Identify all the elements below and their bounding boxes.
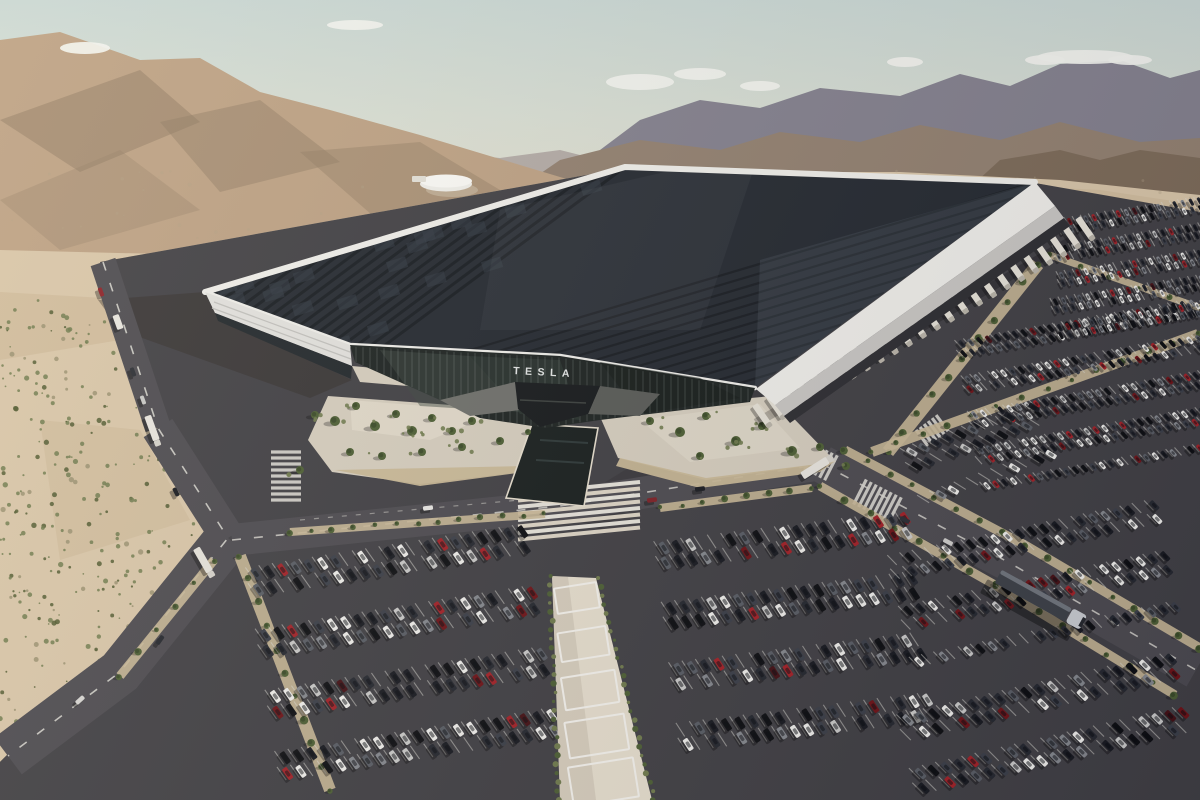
desert-shrub bbox=[42, 385, 47, 390]
desert-shrub bbox=[129, 497, 134, 502]
desert-shrub bbox=[30, 418, 33, 421]
walkway-shrub bbox=[628, 709, 632, 713]
tree-core bbox=[282, 671, 286, 675]
walkway-shrub bbox=[550, 618, 556, 624]
tree-core bbox=[810, 487, 813, 490]
tree-core bbox=[419, 449, 423, 453]
tree-core bbox=[213, 559, 216, 562]
desert-speck bbox=[160, 171, 163, 174]
cloud bbox=[606, 74, 674, 90]
desert-shrub bbox=[23, 590, 26, 593]
desert-shrub bbox=[17, 389, 20, 392]
desert-shrub bbox=[70, 422, 75, 427]
tree-core bbox=[817, 444, 821, 448]
desert-shrub bbox=[89, 395, 93, 399]
desert-shrub bbox=[97, 418, 102, 423]
desert-shrub bbox=[66, 472, 71, 477]
tree-core bbox=[766, 491, 770, 495]
desert-shrub bbox=[58, 614, 60, 616]
desert-shrub bbox=[119, 617, 121, 619]
tree-core bbox=[116, 675, 119, 678]
tree-core bbox=[1070, 378, 1072, 380]
desert-shrub bbox=[0, 507, 5, 512]
desert-shrub bbox=[98, 626, 101, 629]
walkway-shrub bbox=[551, 717, 556, 722]
desert-speck bbox=[11, 220, 13, 222]
plaza-shrub bbox=[345, 403, 349, 407]
desert-shrub bbox=[86, 644, 91, 649]
desert-shrub bbox=[20, 490, 22, 492]
desert-shrub bbox=[43, 557, 46, 560]
desert-shrub bbox=[115, 463, 117, 465]
desert-shrub bbox=[111, 560, 114, 563]
walkway-shrub bbox=[642, 762, 646, 766]
tree-core bbox=[329, 528, 333, 532]
tree-core bbox=[393, 411, 397, 415]
desert-shrub bbox=[82, 573, 84, 575]
desert-shrub bbox=[138, 549, 143, 554]
desert-shrub bbox=[7, 503, 11, 507]
desert-shrub bbox=[50, 502, 54, 506]
tree-core bbox=[310, 529, 312, 531]
desert-shrub bbox=[116, 537, 119, 540]
walkway-shrub bbox=[606, 620, 611, 625]
desert-speck bbox=[320, 212, 323, 215]
desert-shrub bbox=[81, 587, 85, 591]
desert-shrub bbox=[25, 636, 27, 638]
desert-shrub bbox=[34, 391, 38, 395]
plaza-shrub bbox=[402, 432, 404, 434]
walkway-shrub bbox=[608, 629, 612, 633]
desert-shrub bbox=[147, 530, 151, 534]
plaza-shrub bbox=[708, 415, 711, 418]
plaza-shrub bbox=[842, 463, 845, 466]
desert-shrub bbox=[192, 522, 195, 525]
desert-shrub bbox=[139, 455, 143, 459]
desert-shrub bbox=[13, 406, 18, 411]
desert-shrub bbox=[37, 299, 40, 302]
tree-core bbox=[899, 430, 903, 434]
plaza-shrub bbox=[420, 431, 423, 434]
walkway-shrub bbox=[614, 647, 619, 652]
desert-shrub bbox=[82, 497, 86, 501]
desert-shrub bbox=[2, 553, 4, 555]
tree-core bbox=[916, 539, 920, 543]
tree-core bbox=[236, 554, 239, 557]
scene-canvas: TESLA TESLA bbox=[0, 0, 1200, 800]
plaza-shrub bbox=[372, 420, 375, 423]
desert-shrub bbox=[55, 639, 58, 642]
desert-shrub bbox=[147, 550, 151, 554]
desert-shrub bbox=[64, 326, 66, 328]
desert-shrub bbox=[2, 538, 5, 541]
walkway-shrub bbox=[620, 665, 624, 669]
plaza-shrub bbox=[455, 439, 459, 443]
walkway-shrub bbox=[555, 735, 559, 739]
walkway-shrub bbox=[640, 754, 643, 757]
desert-shrub bbox=[133, 580, 136, 583]
desert-shrub bbox=[37, 617, 40, 620]
walkway-shrub bbox=[547, 591, 552, 596]
desert-shrub bbox=[85, 340, 89, 344]
desert-shrub bbox=[89, 324, 91, 326]
tree-core bbox=[817, 484, 820, 487]
desert-shrub bbox=[65, 421, 67, 423]
desert-shrub bbox=[126, 569, 130, 573]
walkway-shrub bbox=[552, 700, 555, 703]
desert-shrub bbox=[50, 603, 53, 606]
desert-shrub bbox=[44, 639, 49, 644]
desert-shrub bbox=[61, 337, 65, 341]
desert-shrub bbox=[97, 589, 100, 592]
desert-shrub bbox=[54, 463, 57, 466]
tree-core bbox=[888, 472, 891, 475]
tree-core bbox=[977, 518, 980, 521]
cloud bbox=[1108, 55, 1152, 65]
tree-core bbox=[1045, 555, 1049, 559]
desert-shrub bbox=[48, 618, 53, 623]
walkway-shrub bbox=[600, 594, 604, 598]
desert-shrub bbox=[132, 605, 134, 607]
plaza-shrub bbox=[470, 450, 474, 454]
tree-core bbox=[436, 520, 439, 523]
tree-core bbox=[841, 497, 845, 501]
desert-shrub bbox=[102, 588, 105, 591]
desert-shrub bbox=[131, 554, 134, 557]
desert-speck bbox=[138, 171, 140, 173]
tree-core bbox=[395, 522, 397, 524]
desert-shrub bbox=[5, 385, 7, 387]
tree-core bbox=[526, 430, 529, 433]
plaza-shrub bbox=[739, 441, 743, 445]
desert-shrub bbox=[3, 638, 8, 643]
desert-shrub bbox=[64, 315, 69, 320]
walkway-shrub bbox=[621, 673, 626, 678]
desert-shrub bbox=[124, 573, 128, 577]
desert-shrub bbox=[22, 474, 24, 476]
desert-shrub bbox=[117, 579, 119, 581]
tree-core bbox=[154, 628, 157, 631]
tree-core bbox=[542, 512, 544, 514]
walkway-shrub bbox=[550, 680, 556, 686]
desert-shrub bbox=[28, 326, 31, 329]
desert-shrub bbox=[110, 613, 114, 617]
walkway-shrub bbox=[648, 780, 653, 785]
desert-shrub bbox=[101, 421, 106, 426]
tree-core bbox=[301, 717, 306, 722]
plaza-shrub bbox=[661, 416, 664, 419]
desert-shrub bbox=[43, 472, 46, 475]
desert-shrub bbox=[13, 308, 17, 312]
walkway-shrub bbox=[651, 789, 655, 793]
walkway-shrub bbox=[596, 576, 600, 580]
tree-core bbox=[456, 517, 459, 520]
walkway-shrub bbox=[549, 637, 552, 640]
tree-core bbox=[647, 418, 651, 422]
desert-speck bbox=[361, 186, 364, 189]
desert-shrub bbox=[35, 382, 38, 385]
desert-shrub bbox=[55, 513, 59, 517]
desert-shrub bbox=[94, 648, 98, 652]
desert-shrub bbox=[105, 510, 108, 513]
desert-shrub bbox=[14, 709, 16, 711]
tree-core bbox=[1088, 581, 1091, 584]
tree-core bbox=[921, 432, 924, 435]
desert-shrub bbox=[9, 372, 12, 375]
desert-shrub bbox=[51, 525, 54, 528]
plaza-shrub bbox=[751, 427, 755, 431]
tree-core bbox=[966, 568, 970, 572]
plaza-shrub bbox=[734, 440, 738, 444]
desert-shrub bbox=[97, 610, 99, 612]
desert-shrub bbox=[105, 464, 109, 468]
desert-shrub bbox=[34, 657, 39, 662]
tree-core bbox=[722, 496, 726, 500]
tree-core bbox=[264, 623, 267, 626]
desert-shrub bbox=[64, 467, 69, 472]
tree-core bbox=[1171, 693, 1175, 697]
tank-pipe bbox=[412, 176, 426, 182]
walkway-shrub bbox=[613, 639, 616, 642]
desert-shrub bbox=[134, 499, 137, 502]
desert-shrub bbox=[95, 498, 99, 502]
tree-core bbox=[1083, 637, 1086, 640]
plaza-shrub bbox=[747, 446, 750, 449]
desert-shrub bbox=[103, 578, 108, 583]
desert-shrub bbox=[18, 600, 21, 603]
desert-shrub bbox=[80, 442, 84, 446]
desert-shrub bbox=[18, 575, 21, 578]
desert-speck bbox=[142, 189, 144, 191]
tree-core bbox=[703, 413, 707, 417]
tree-core bbox=[744, 493, 748, 497]
desert-shrub bbox=[153, 566, 156, 569]
plaza-shrub bbox=[715, 411, 718, 414]
tree-core bbox=[1000, 530, 1004, 534]
walkway-shrub bbox=[554, 743, 560, 749]
desert-shrub bbox=[33, 360, 37, 364]
desert-shrub bbox=[63, 662, 65, 664]
desert-shrub bbox=[191, 534, 193, 536]
plaza-shrub bbox=[411, 434, 414, 437]
desert-shrub bbox=[66, 540, 70, 544]
tree-core bbox=[894, 441, 897, 444]
tree-core bbox=[1104, 653, 1107, 656]
desert-shrub bbox=[17, 455, 20, 458]
desert-shrub bbox=[28, 592, 33, 597]
walkway-shrub bbox=[552, 726, 558, 732]
desert-shrub bbox=[107, 392, 111, 396]
desert-shrub bbox=[102, 481, 106, 485]
tree-core bbox=[417, 522, 420, 525]
desert-shrub bbox=[86, 421, 90, 425]
desert-shrub bbox=[162, 540, 166, 544]
tree-core bbox=[700, 501, 703, 504]
tree-core bbox=[787, 488, 791, 492]
desert-shrub bbox=[116, 544, 120, 548]
desert-shrub bbox=[103, 405, 106, 408]
desert-shrub bbox=[44, 440, 49, 445]
desert-shrub bbox=[63, 549, 66, 552]
walkway-shrub bbox=[604, 611, 609, 616]
walkway-shrub bbox=[643, 770, 649, 776]
plaza-shrub bbox=[448, 444, 451, 447]
desert-speck bbox=[1034, 176, 1036, 178]
tree-core bbox=[658, 505, 660, 507]
plaza-shrub bbox=[313, 419, 316, 422]
plaza-shrub bbox=[659, 426, 663, 430]
desert-speck bbox=[169, 170, 171, 172]
cloud bbox=[887, 57, 923, 67]
tree-core bbox=[944, 423, 948, 427]
desert-shrub bbox=[9, 576, 12, 579]
desert-shrub bbox=[16, 492, 20, 496]
desert-shrub bbox=[147, 459, 149, 461]
desert-shrub bbox=[35, 371, 39, 375]
desert-speck bbox=[188, 183, 192, 187]
tree-core bbox=[1005, 300, 1008, 303]
tree-core bbox=[1019, 395, 1022, 398]
plaza-shrub bbox=[407, 425, 411, 429]
tree-core bbox=[308, 740, 312, 744]
walkway-shrub bbox=[621, 682, 627, 688]
desert-shrub bbox=[9, 596, 12, 599]
walkway-shrub bbox=[551, 654, 556, 659]
walkway-shrub bbox=[624, 691, 630, 697]
desert-shrub bbox=[72, 337, 75, 340]
desert-shrub bbox=[90, 540, 94, 544]
desert-shrub bbox=[34, 642, 39, 647]
desert-shrub bbox=[67, 417, 71, 421]
desert-shrub bbox=[50, 640, 54, 644]
desert-shrub bbox=[1, 466, 6, 471]
desert-shrub bbox=[14, 511, 17, 514]
desert-shrub bbox=[131, 585, 133, 587]
desert-shrub bbox=[13, 375, 15, 377]
tree-core bbox=[477, 515, 480, 518]
tree-core bbox=[351, 525, 354, 528]
walkway-shrub bbox=[548, 601, 552, 605]
tree-core bbox=[331, 417, 337, 423]
aerial-render: TESLA TESLA bbox=[0, 0, 1200, 800]
desert-shrub bbox=[69, 477, 74, 482]
desert-shrub bbox=[73, 459, 78, 464]
walkway-shrub bbox=[547, 582, 552, 587]
tree-core bbox=[312, 412, 316, 416]
tree-core bbox=[469, 418, 473, 422]
desert-shrub bbox=[22, 614, 27, 619]
desert-shrub bbox=[5, 671, 7, 673]
tree-core bbox=[869, 450, 872, 453]
walkway-shrub bbox=[554, 691, 557, 694]
desert-shrub bbox=[75, 591, 77, 593]
desert-shrub bbox=[138, 569, 142, 573]
desert-shrub bbox=[66, 680, 68, 682]
walkway-shrub bbox=[549, 574, 553, 578]
tree-core bbox=[497, 438, 501, 442]
desert-shrub bbox=[2, 377, 4, 379]
cloud bbox=[60, 42, 110, 54]
desert-shrub bbox=[23, 357, 26, 360]
desert-shrub bbox=[114, 581, 117, 584]
desert-shrub bbox=[158, 560, 162, 564]
desert-speck bbox=[48, 173, 51, 176]
walkway-shrub bbox=[547, 609, 553, 615]
desert-shrub bbox=[31, 523, 36, 528]
desert-shrub bbox=[97, 634, 101, 638]
plaza-shrub bbox=[446, 428, 451, 433]
desert-shrub bbox=[129, 603, 131, 605]
plaza-shrub bbox=[794, 453, 799, 458]
tree-core bbox=[676, 428, 682, 434]
desert-shrub bbox=[24, 375, 29, 380]
plaza-shrub bbox=[368, 452, 370, 454]
desert-speck bbox=[178, 223, 182, 227]
tree-core bbox=[256, 599, 260, 603]
desert-shrub bbox=[41, 526, 45, 530]
desert-speck bbox=[247, 228, 250, 231]
desert-speck bbox=[1189, 197, 1191, 199]
desert-shrub bbox=[95, 493, 100, 498]
desert-shrub bbox=[116, 532, 120, 536]
water-tank-top bbox=[420, 175, 472, 188]
desert-shrub bbox=[50, 570, 52, 572]
desert-shrub bbox=[93, 391, 98, 396]
walkway-shrub bbox=[637, 735, 643, 741]
plaza-shrub bbox=[389, 415, 392, 418]
tree-core bbox=[500, 513, 503, 516]
desert-shrub bbox=[12, 590, 14, 592]
tree-core bbox=[910, 483, 913, 486]
desert-shrub bbox=[10, 352, 15, 357]
desert-shrub bbox=[43, 374, 48, 379]
desert-shrub bbox=[124, 541, 129, 546]
desert-shrub bbox=[148, 455, 150, 457]
tree-core bbox=[866, 459, 869, 462]
desert-shrub bbox=[101, 486, 103, 488]
walkway-shrub bbox=[554, 752, 560, 758]
plaza-shrub bbox=[318, 413, 322, 417]
tree-core bbox=[135, 649, 139, 653]
desert-shrub bbox=[3, 482, 8, 487]
desert-shrub bbox=[71, 456, 73, 458]
tree-core bbox=[328, 789, 331, 792]
desert-shrub bbox=[87, 522, 92, 527]
plaza-shrub bbox=[341, 419, 346, 424]
desert-shrub bbox=[13, 594, 16, 597]
tree-core bbox=[373, 523, 376, 526]
desert-shrub bbox=[46, 394, 49, 397]
desert-shrub bbox=[79, 451, 82, 454]
desert-shrub bbox=[114, 367, 118, 371]
desert-shrub bbox=[17, 368, 20, 371]
desert-shrub bbox=[27, 490, 31, 494]
cloud bbox=[674, 68, 726, 80]
tree-core bbox=[379, 453, 383, 457]
desert-shrub bbox=[6, 330, 8, 332]
desert-shrub bbox=[48, 556, 50, 558]
desert-shrub bbox=[65, 388, 68, 391]
desert-shrub bbox=[66, 456, 69, 459]
tree-core bbox=[930, 392, 934, 396]
walkway-shrub bbox=[598, 584, 604, 590]
desert-shrub bbox=[111, 351, 115, 355]
plaza-shrub bbox=[786, 447, 789, 450]
tree-core bbox=[946, 375, 950, 379]
desert-shrub bbox=[68, 529, 73, 534]
walkway-shrub bbox=[615, 656, 619, 660]
desert-shrub bbox=[85, 464, 90, 469]
